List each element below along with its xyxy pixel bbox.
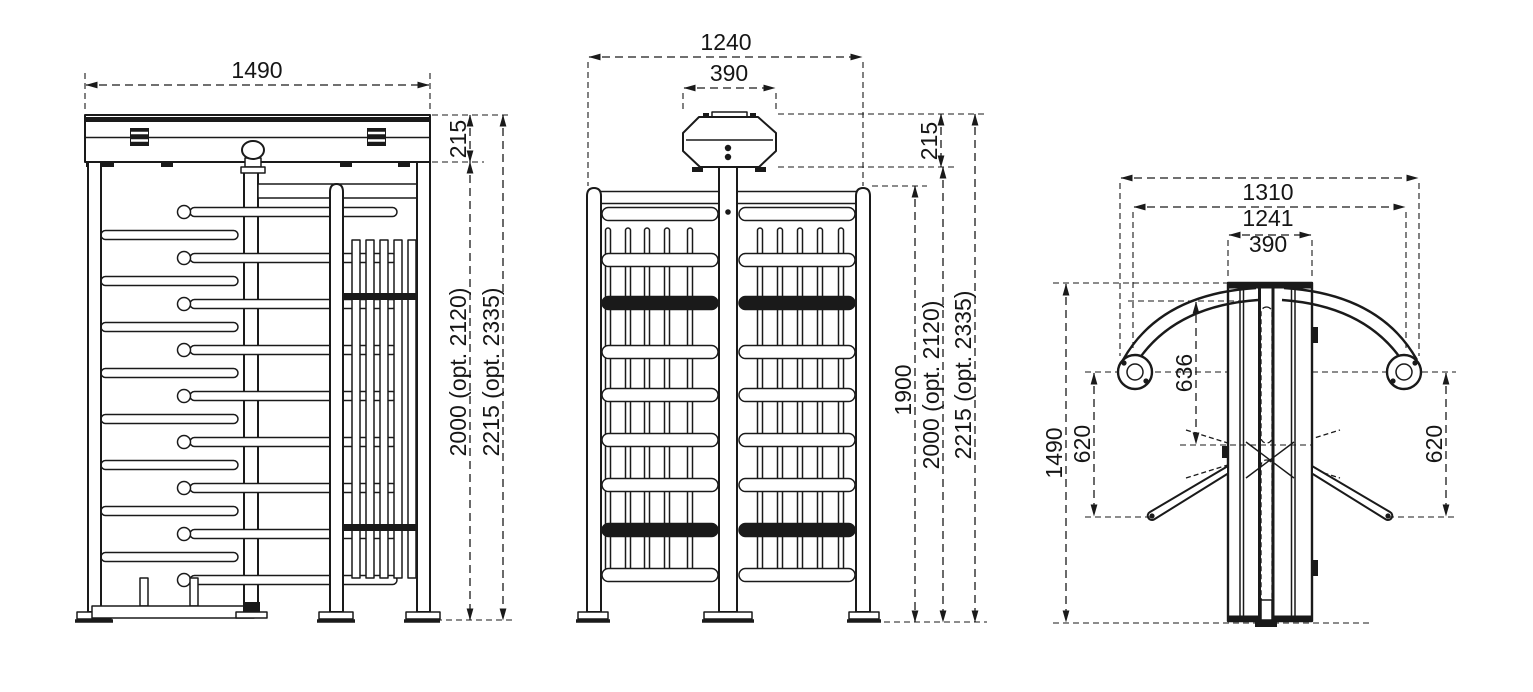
side-right-post (849, 188, 879, 619)
front-view: 1490 215 2000 (opt. 2120) 2215 (opt. 233… (75, 57, 512, 621)
front-height-label: 2000 (opt. 2120) (445, 288, 471, 457)
side-head-height-label: 215 (916, 122, 942, 160)
side-view: 1240 390 215 1900 2000 (opt. 2120) 2215 … (576, 29, 987, 622)
header-clip-right (367, 128, 386, 146)
side-left-post (578, 188, 608, 619)
dim-front-height: 2000 (opt. 2120) (445, 162, 471, 620)
header-clip-left (130, 128, 149, 146)
side-ground (576, 621, 987, 622)
dim-side-head-height: 215 (778, 114, 987, 167)
plan-right-clearance-label: 620 (1421, 425, 1447, 463)
front-width-label: 1490 (231, 57, 282, 83)
side-total-height-label: 2215 (opt. 2335) (950, 291, 976, 460)
side-width-label: 1240 (700, 29, 751, 55)
plan-rotor-offset-label: 636 (1171, 354, 1197, 392)
plan-end-post-left (1118, 355, 1152, 389)
plan-left-clearance-label: 620 (1069, 425, 1095, 463)
plan-overall-width-label: 1310 (1242, 179, 1293, 205)
dim-side-total-height: 2215 (opt. 2335) (950, 114, 976, 622)
dim-plan-left-clearance: 620 (1069, 373, 1152, 517)
head-dot-top (725, 145, 731, 151)
dim-side-head-width: 390 (683, 60, 776, 113)
front-header-height-label: 215 (445, 120, 471, 158)
front-mid-post (319, 184, 353, 619)
side-frame-height-label: 1900 (890, 364, 916, 415)
dim-front-header-height: 215 (432, 115, 512, 162)
dim-side-height: 2000 (opt. 2120) (918, 167, 944, 622)
side-head-width-label: 390 (710, 60, 748, 86)
front-header-knob (241, 141, 265, 173)
dim-plan-depth: 1490 (1041, 284, 1067, 622)
side-head-unit (683, 112, 776, 172)
plan-depth-label: 1490 (1041, 427, 1067, 478)
dim-plan-column-width: 390 (1228, 231, 1312, 279)
plan-column-width-label: 390 (1249, 231, 1287, 257)
dim-front-width: 1490 (85, 57, 430, 113)
plan-view: 1310 1241 390 1490 620 636 (1041, 178, 1456, 627)
plan-post-spacing-label: 1241 (1242, 205, 1293, 231)
plan-end-post-right (1387, 355, 1421, 389)
dim-plan-right-clearance: 620 (1388, 373, 1456, 517)
head-dot-bottom (725, 154, 731, 160)
side-height-label: 2000 (opt. 2120) (918, 301, 944, 470)
turnstile-technical-drawing: 1490 215 2000 (opt. 2120) 2215 (opt. 233… (0, 0, 1533, 692)
front-total-height-label: 2215 (opt. 2335) (478, 288, 504, 457)
plan-column (1128, 283, 1318, 627)
